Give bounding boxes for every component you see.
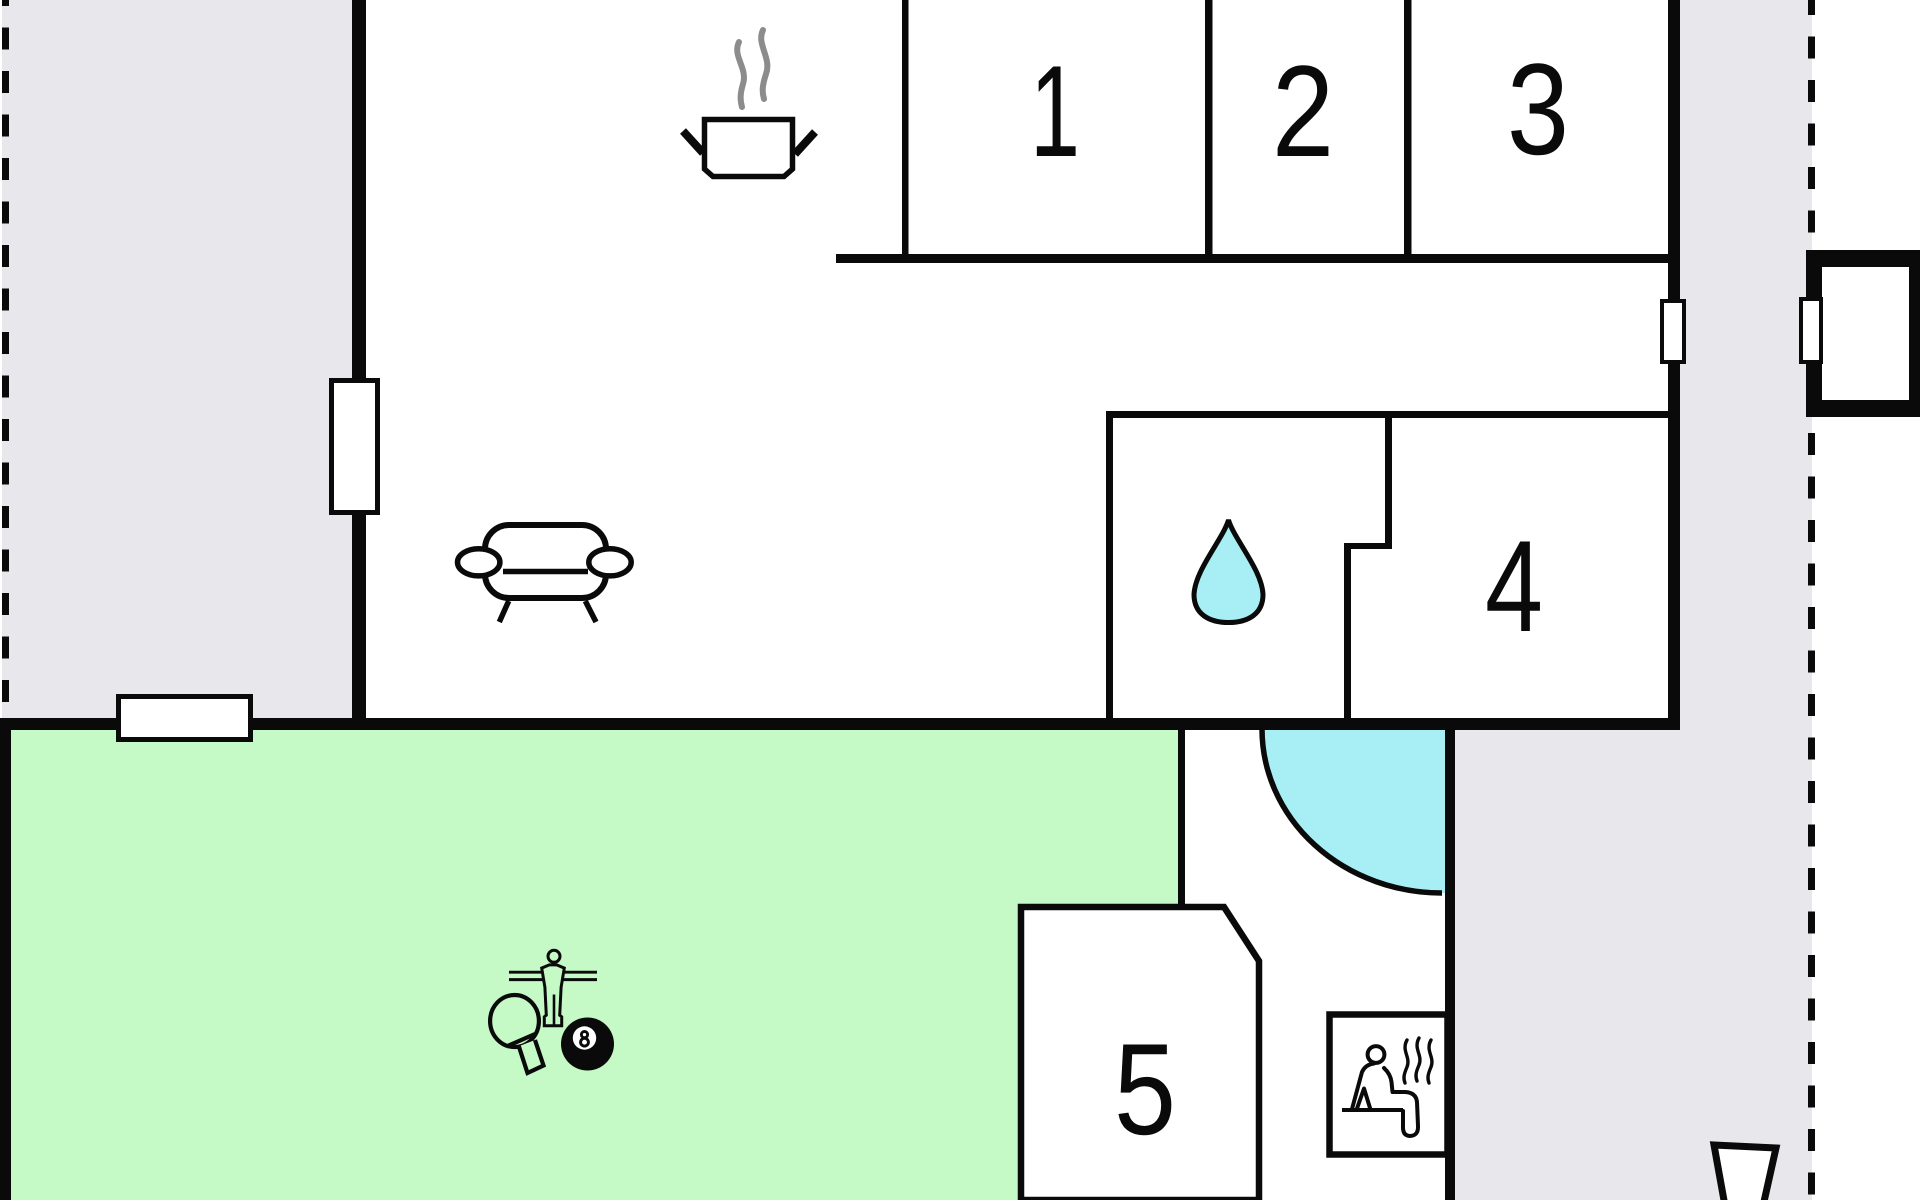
svg-text:3: 3: [1507, 36, 1569, 182]
svg-text:4: 4: [1485, 513, 1543, 659]
svg-text:5: 5: [1114, 1016, 1176, 1162]
svg-text:2: 2: [1272, 38, 1334, 184]
svg-text:1: 1: [1030, 38, 1080, 184]
